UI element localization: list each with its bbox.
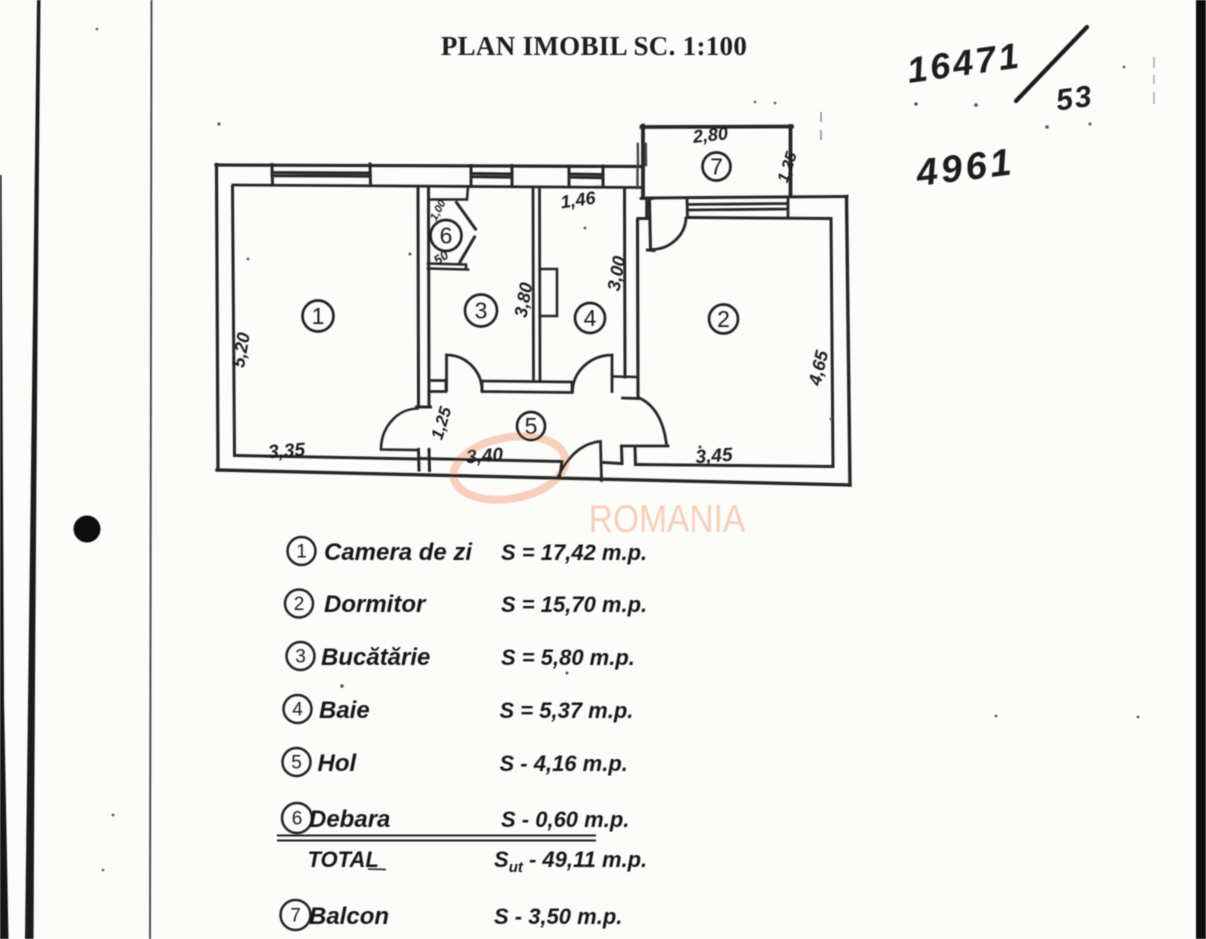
svg-text:S = 17,42 m.p.: S = 17,42 m.p. [501,540,647,565]
svg-text:1: 1 [296,542,307,563]
svg-text:53: 53 [1054,80,1096,118]
svg-text:PLAN IMOBIL SC. 1:100: PLAN IMOBIL SC. 1:100 [441,31,747,61]
svg-text:Hol: Hol [318,750,358,777]
svg-text:7: 7 [710,154,723,180]
svg-text:Balcon: Balcon [309,903,389,930]
svg-text:S = 15,70 m.p.: S = 15,70 m.p. [501,592,647,617]
svg-text:3: 3 [475,298,488,324]
svg-text:S - 3,50 m.p.: S - 3,50 m.p. [494,904,622,929]
svg-text:Dormitor: Dormitor [324,591,427,618]
svg-text:3,35: 3,35 [267,440,306,464]
svg-text:4: 4 [292,700,303,721]
svg-text:7: 7 [290,906,301,927]
svg-text:S = 5,37 m.p.: S = 5,37 m.p. [500,698,634,723]
svg-text:ROMANIA: ROMANIA [589,497,746,541]
svg-text:2,80: 2,80 [691,123,729,147]
svg-text:2: 2 [717,306,730,332]
svg-text:S - 4,16 m.p.: S - 4,16 m.p. [500,751,628,776]
svg-text:3: 3 [295,647,306,668]
svg-text:Bucătărie: Bucătărie [321,644,430,671]
svg-text:1: 1 [312,303,325,329]
svg-text:5: 5 [291,753,302,774]
svg-text:4: 4 [584,305,597,331]
svg-text:Camera de zi: Camera de zi [324,539,473,566]
svg-text:2: 2 [294,594,305,615]
svg-text:6: 6 [292,809,303,830]
svg-text:S - 0,60 m.p.: S - 0,60 m.p. [501,807,629,832]
svg-text:6: 6 [440,223,453,249]
svg-text:3,40: 3,40 [465,445,504,469]
svg-text:5: 5 [525,413,538,439]
svg-text:S = 5,80 m.p.: S = 5,80 m.p. [501,645,635,670]
svg-text:Baie: Baie [319,697,370,724]
svg-text:Debara: Debara [309,806,390,833]
